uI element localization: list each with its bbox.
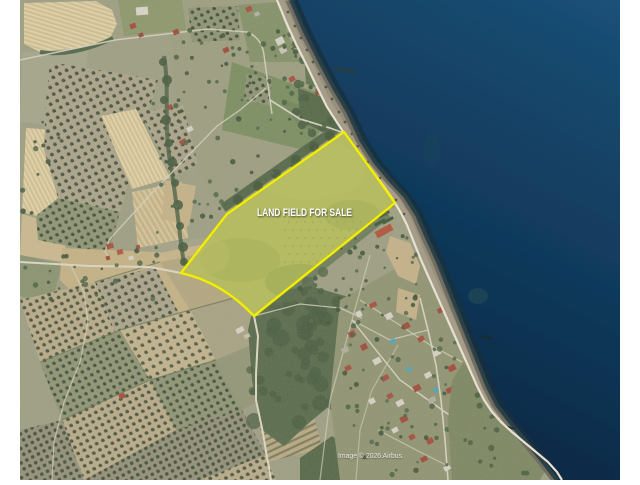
svg-text:LAND FIELD FOR SALE: LAND FIELD FOR SALE (257, 207, 352, 219)
svg-text:Image © 2026 Airbus: Image © 2026 Airbus (338, 451, 402, 460)
